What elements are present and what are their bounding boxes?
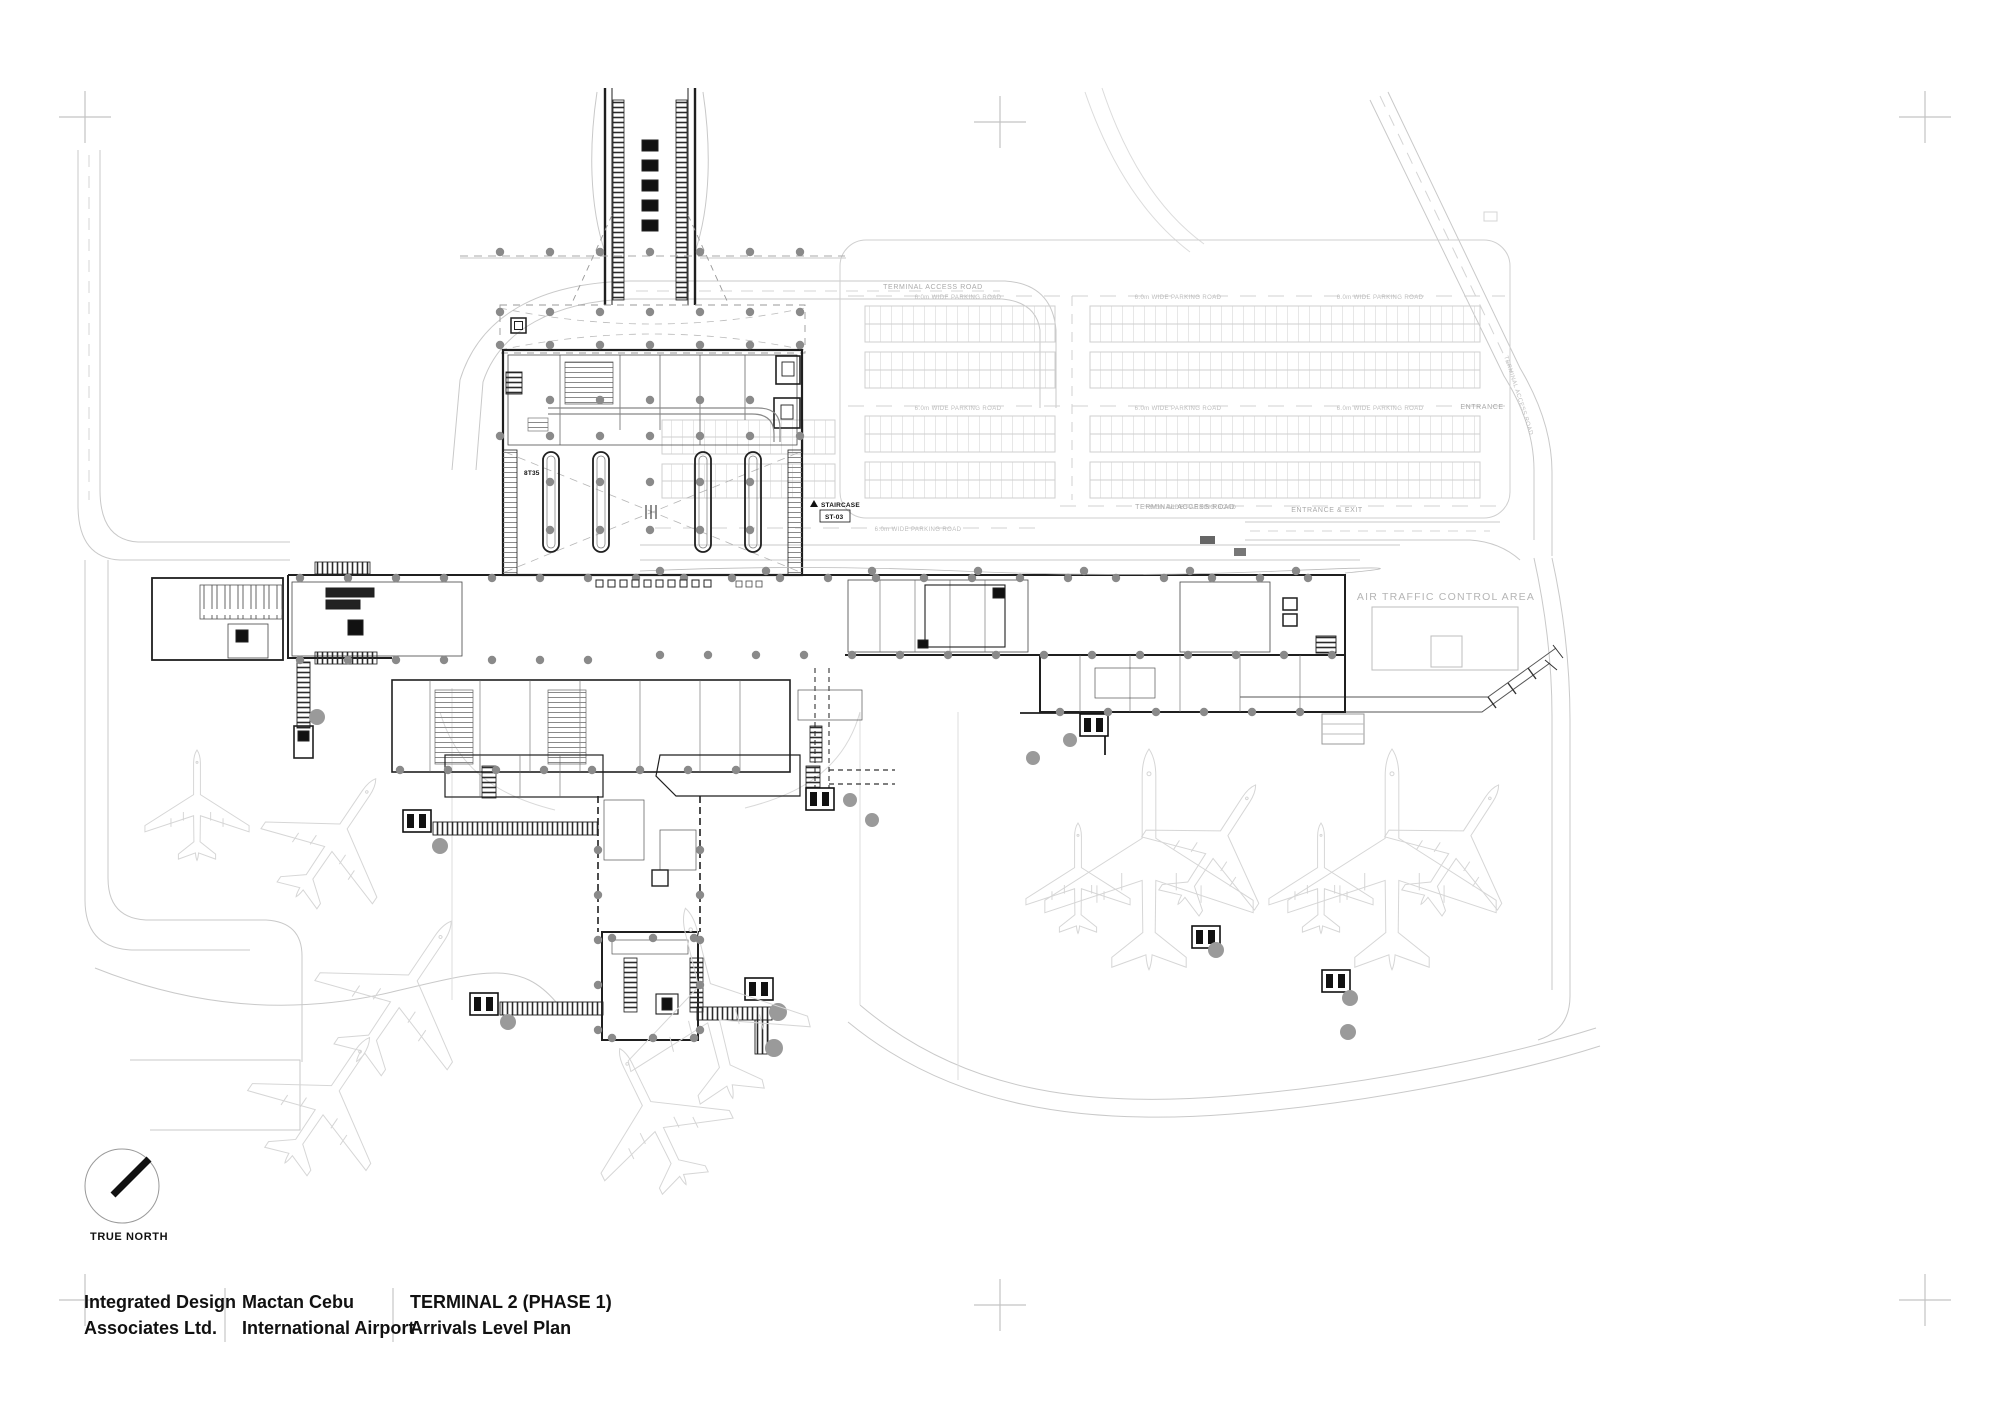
true-north-label: TRUE NORTH bbox=[90, 1231, 168, 1243]
sheet-crosshairs bbox=[59, 91, 1951, 1331]
atc-area: AIR TRAFFIC CONTROL AREA bbox=[1357, 591, 1535, 670]
project-name-line2: International Airport bbox=[242, 1318, 414, 1338]
forecourt-canopy bbox=[460, 256, 845, 353]
floor-plan-canvas: 6.0m WIDE PARKING ROAD 6.0m WIDE PARKING… bbox=[0, 0, 2000, 1414]
mid-pier bbox=[798, 668, 1105, 792]
east-link-bridge bbox=[1240, 645, 1563, 744]
concourse bbox=[152, 562, 1380, 712]
entrance-exit-label: ENTRANCE & EXIT bbox=[1291, 507, 1363, 514]
parking-road-label: 6.0m WIDE PARKING ROAD bbox=[1135, 295, 1222, 301]
parking-road-label: 6.0m WIDE PARKING ROAD bbox=[1135, 406, 1222, 412]
terminal-access-road-label: TERMINAL ACCESS ROAD bbox=[1135, 504, 1235, 511]
sky-bridge bbox=[572, 88, 728, 305]
north-needle bbox=[113, 1159, 149, 1195]
staircase-callout: STAIRCASE ST-03 bbox=[810, 500, 860, 522]
terminal-access-road-label-rotated: TERMINAL ACCESS ROAD bbox=[1502, 355, 1533, 436]
firm-name-line1: Integrated Design bbox=[84, 1292, 236, 1312]
staircase-label: STAIRCASE bbox=[821, 502, 860, 509]
parking-road-label: 6.0m WIDE PARKING ROAD bbox=[1337, 295, 1424, 301]
jet-bridges bbox=[433, 770, 895, 1054]
parking-road-label: 6.0m WIDE PARKING ROAD bbox=[915, 406, 1002, 412]
sheet-title-line1: TERMINAL 2 (PHASE 1) bbox=[410, 1292, 612, 1312]
south-west-block bbox=[392, 680, 790, 772]
title-block: Integrated Design Associates Ltd. Mactan… bbox=[84, 1288, 612, 1342]
car-park: 6.0m WIDE PARKING ROAD 6.0m WIDE PARKING… bbox=[655, 240, 1510, 533]
staircase-id-label: ST-03 bbox=[825, 514, 844, 521]
parking-road-label: 6.0m WIDE PARKING ROAD bbox=[875, 527, 962, 533]
drawing-sheet: 6.0m WIDE PARKING ROAD 6.0m WIDE PARKING… bbox=[0, 0, 2000, 1414]
sheet-title-line2: Arrivals Level Plan bbox=[410, 1318, 571, 1338]
terminal-hall: 8T35 bbox=[503, 350, 802, 575]
firm-name-line2: Associates Ltd. bbox=[84, 1318, 217, 1338]
true-north-compass: TRUE NORTH bbox=[85, 1149, 168, 1243]
entrance-label: ENTRANCE bbox=[1460, 404, 1503, 411]
grid-note-label: 8T35 bbox=[524, 470, 540, 477]
terminal-access-road-label: TERMINAL ACCESS ROAD bbox=[883, 284, 983, 291]
parking-stalls bbox=[662, 306, 1480, 498]
checkin-counter-row bbox=[596, 580, 762, 587]
west-pier bbox=[294, 662, 313, 758]
parking-road-label: 6.0m WIDE PARKING ROAD bbox=[915, 295, 1002, 301]
atc-label: AIR TRAFFIC CONTROL AREA bbox=[1357, 591, 1535, 603]
project-name-line1: Mactan Cebu bbox=[242, 1292, 354, 1312]
parking-road-label: 6.0m WIDE PARKING ROAD bbox=[1337, 406, 1424, 412]
